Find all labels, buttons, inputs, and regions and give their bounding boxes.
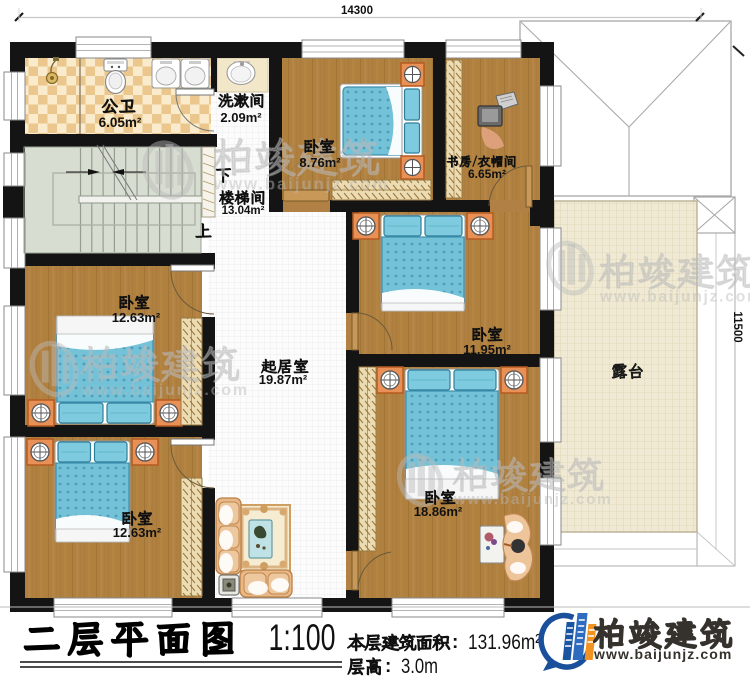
svg-text:www.baijunjz.com: www.baijunjz.com <box>593 646 732 662</box>
svg-text:6.65m²: 6.65m² <box>468 167 506 181</box>
svg-text:1:100: 1:100 <box>269 617 336 658</box>
svg-text:www.baijunjz.com: www.baijunjz.com <box>599 288 750 305</box>
svg-text:11.95m²: 11.95m² <box>463 342 511 357</box>
svg-text:www.baijunjz.com: www.baijunjz.com <box>453 491 612 508</box>
svg-text:13.04m²: 13.04m² <box>222 205 265 217</box>
svg-text:2.09m²: 2.09m² <box>220 110 262 125</box>
svg-text:14300: 14300 <box>341 5 373 17</box>
svg-text:11500: 11500 <box>731 311 743 342</box>
svg-text:12.63m²: 12.63m² <box>113 525 162 540</box>
svg-text::: : <box>385 656 391 677</box>
svg-text:www.baijunjz.com: www.baijunjz.com <box>81 382 249 399</box>
svg-text:3.0m: 3.0m <box>401 654 438 678</box>
svg-text:12.63m²: 12.63m² <box>112 310 161 325</box>
svg-text:8.76m²: 8.76m² <box>299 155 341 170</box>
svg-text:www.baijunjz.com: www.baijunjz.com <box>213 175 389 194</box>
svg-text::: : <box>452 632 458 653</box>
svg-text:19.87m²: 19.87m² <box>259 372 308 387</box>
svg-text:6.05m²: 6.05m² <box>99 115 142 130</box>
svg-text:18.86m²: 18.86m² <box>414 504 463 519</box>
svg-text:131.96m²: 131.96m² <box>468 630 541 654</box>
